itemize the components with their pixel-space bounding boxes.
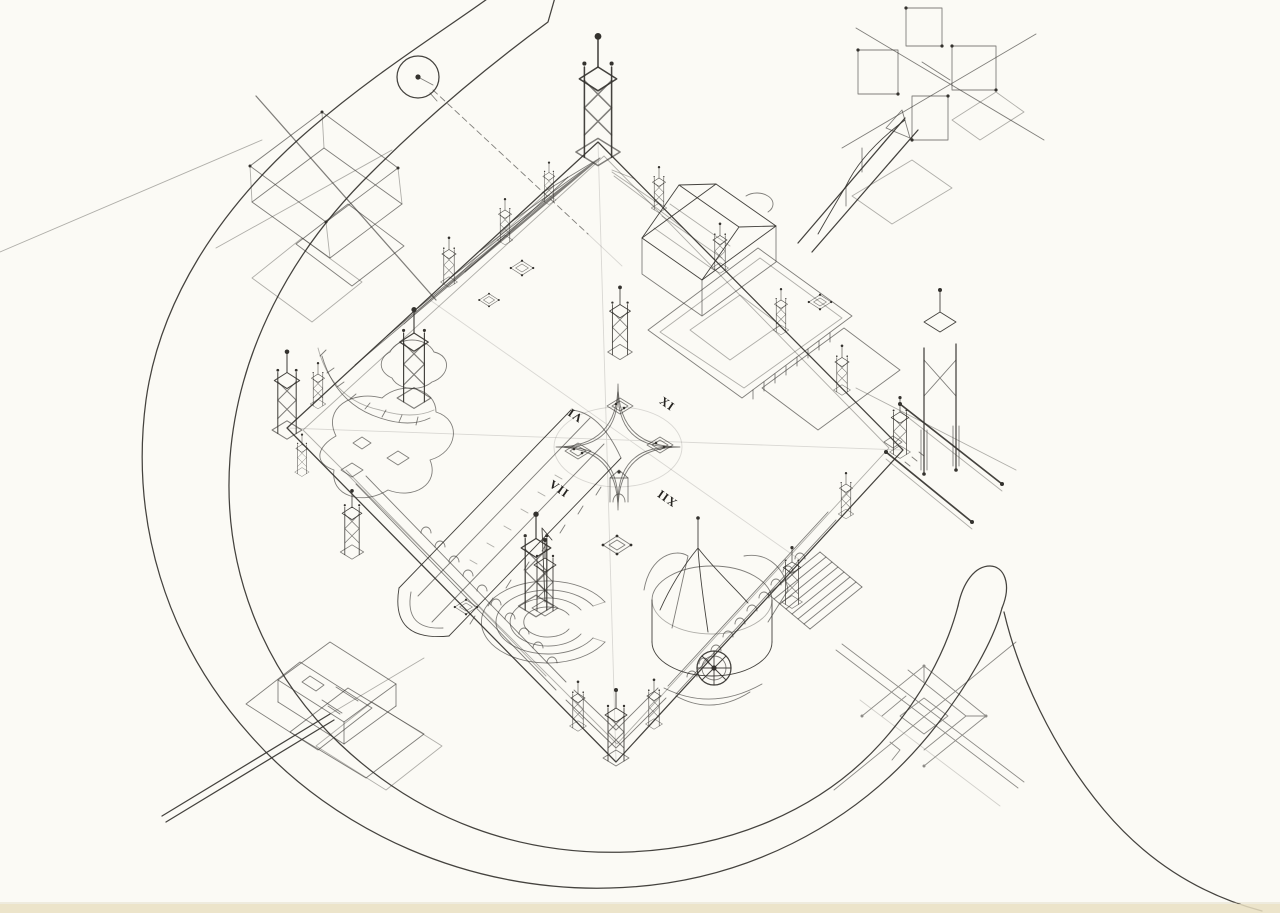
northeast-range xyxy=(648,248,900,430)
cloister-arcade xyxy=(346,470,566,690)
courtyard-numeral-xii: XII xyxy=(654,487,679,511)
grand-stair xyxy=(768,552,862,629)
scan-edge-strip xyxy=(0,903,1280,913)
rose-wheel-window xyxy=(697,651,731,685)
gate-frame xyxy=(478,293,500,308)
garden-court xyxy=(318,340,453,498)
southeast-arcade xyxy=(668,512,836,694)
gate-frame xyxy=(510,260,535,277)
gate-frames xyxy=(454,260,833,616)
lattice-tower xyxy=(310,362,326,409)
courtyard-numeral-xi: XI xyxy=(657,394,678,414)
road-tail-curve xyxy=(1004,612,1262,911)
architectural-drawing-canvas: VI XI XII VII xyxy=(0,0,1280,913)
axis-line xyxy=(256,96,436,300)
ring-road-outer-edge xyxy=(142,0,1002,888)
spiral-amphitheater xyxy=(481,528,605,663)
axis-line xyxy=(162,714,334,822)
suspension-ramp xyxy=(798,110,918,252)
fan-roof-hall xyxy=(355,158,683,365)
tent-roof-rotunda xyxy=(644,516,788,705)
ring-road-end-cap xyxy=(958,566,1006,608)
lattice-tower xyxy=(608,286,633,360)
ring-road-inner-edge xyxy=(229,0,958,852)
axis-dashed-line xyxy=(433,90,588,234)
lattice-tower xyxy=(532,538,558,616)
ring-road xyxy=(142,0,1262,911)
lattice-towers xyxy=(272,33,910,766)
central-courtyard: VI XI XII VII xyxy=(547,384,682,510)
lattice-tower xyxy=(340,489,363,559)
southeast-maze-cluster xyxy=(834,642,1024,806)
northeast-gate-cluster xyxy=(842,6,1044,224)
main-complex: VI XI XII VII xyxy=(272,33,910,766)
scanned-drawing-page: VI XI XII VII xyxy=(0,0,1280,913)
gate-frame xyxy=(602,535,633,556)
courtyard-pavilion xyxy=(565,443,591,459)
northwest-gate-cluster xyxy=(0,96,436,322)
east-pier-beams xyxy=(856,388,1016,529)
lattice-tower xyxy=(272,350,302,440)
southwest-plaza-cluster xyxy=(162,642,442,822)
lattice-tower xyxy=(295,434,309,477)
east-freestanding-tower xyxy=(921,288,959,476)
